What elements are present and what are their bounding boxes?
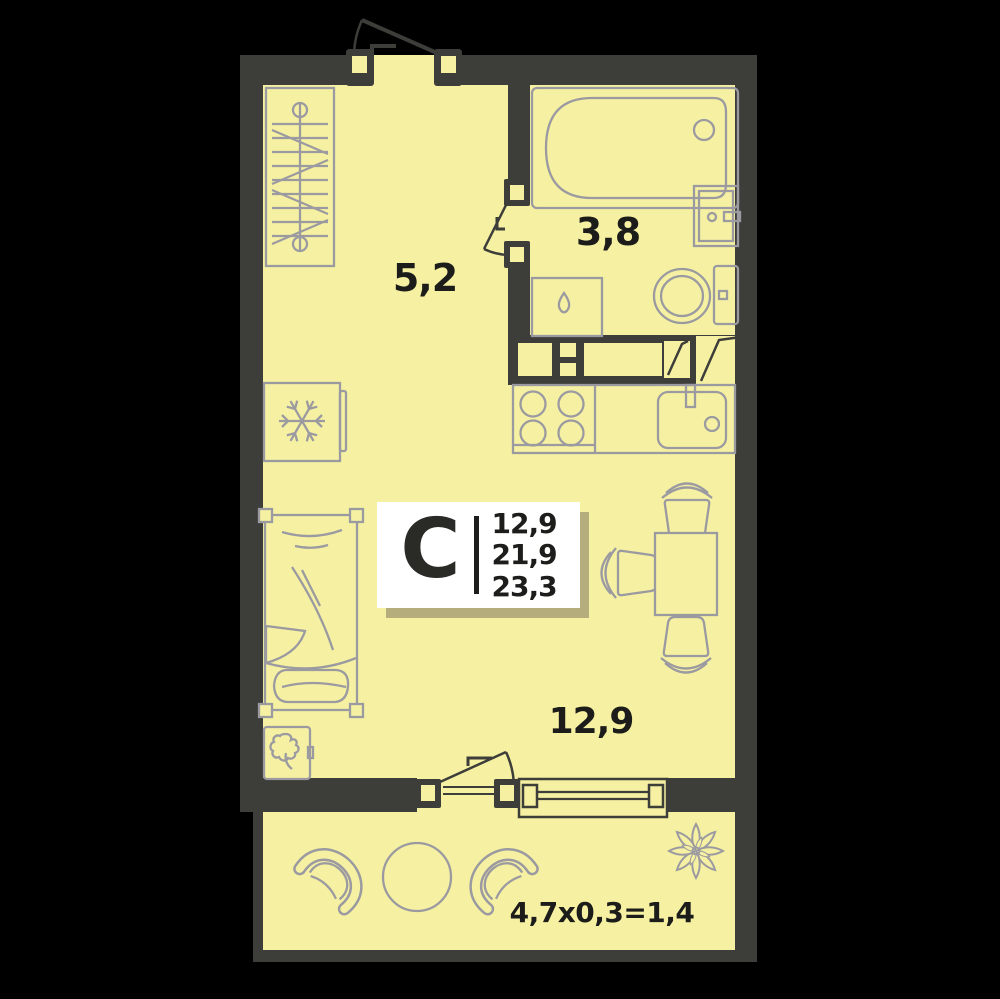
unit-info-card: С 12,9 21,9 23,3	[377, 502, 580, 608]
balcony-area-formula-label: 4,7х0,3=1,4	[510, 896, 695, 929]
living-room-area-label: 12,9	[549, 701, 634, 742]
floor-plan-canvas	[0, 0, 1000, 999]
balcony-table	[383, 843, 451, 911]
unit-type-label: С	[400, 513, 460, 587]
bathroom-area-label: 3,8	[576, 210, 640, 254]
flower-icon	[669, 824, 723, 878]
apartment-area-value: 21,9	[492, 539, 557, 571]
hallway-area-label: 5,2	[393, 256, 457, 300]
balcony-window	[519, 779, 667, 817]
living-area-value: 12,9	[492, 508, 557, 540]
card-divider	[474, 516, 479, 594]
dining-table	[655, 533, 717, 615]
unit-area-values: 12,9 21,9 23,3	[492, 508, 557, 603]
kitchen-counter	[513, 385, 735, 453]
floor-plan: 5,2 3,8 12,9 4,7х0,3=1,4 С 12,9 21,9 23,…	[0, 0, 1000, 999]
total-area-value: 23,3	[492, 571, 557, 603]
